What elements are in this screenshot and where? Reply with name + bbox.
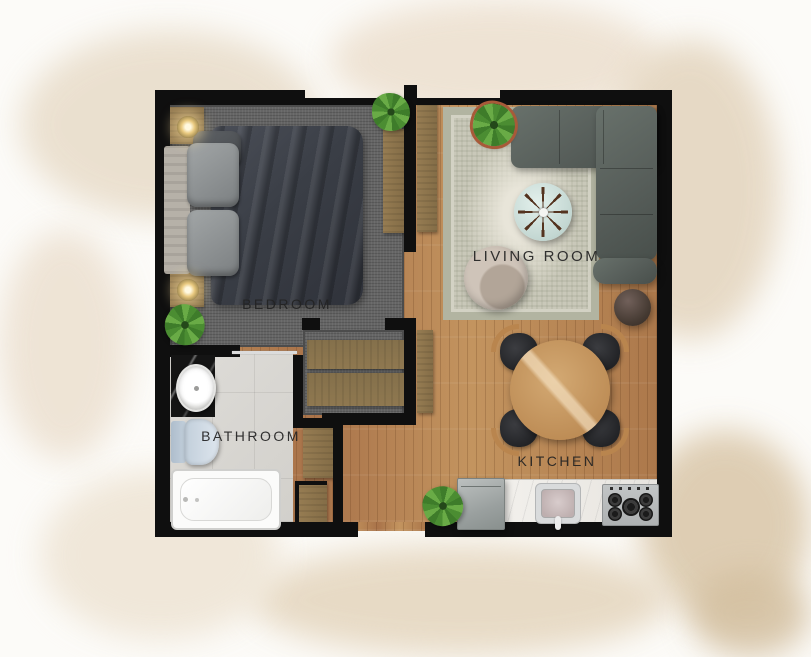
sofa-seam [603, 110, 604, 164]
hall-cabinet [417, 330, 433, 413]
closet-shelf-bottom [307, 373, 404, 406]
burner [622, 498, 640, 516]
living-room-label: LIVING ROOM [449, 248, 624, 265]
wall-top-right [500, 90, 672, 105]
closet-shelf-top [307, 340, 404, 369]
bathtub-tap [183, 497, 188, 502]
kitchen-sink [535, 483, 581, 524]
sink-faucet [555, 516, 561, 530]
dining-table [510, 340, 610, 440]
entry-threshold [358, 522, 425, 531]
wall-top-left [155, 90, 305, 105]
bathtub-tap [195, 498, 199, 502]
wall-entry [333, 425, 343, 535]
bathtub [171, 469, 281, 530]
ottoman [614, 289, 651, 326]
kitchen-label: KITCHEN [482, 453, 632, 469]
refrigerator [457, 478, 505, 530]
burner [639, 493, 653, 507]
bathroom-sink [176, 364, 216, 412]
bathroom-door [232, 351, 297, 354]
sofa-seam [600, 214, 653, 215]
table-lamp-bottom [177, 279, 199, 301]
wall-closet-side [404, 318, 416, 425]
bathroom-label: BATHROOM [176, 428, 326, 444]
bedroom-wardrobe [383, 129, 404, 233]
wall-right [657, 90, 672, 537]
burner [639, 507, 653, 521]
apartment-floor-plan: BEDROOM LIVING ROOM BATHROOM [0, 0, 811, 657]
burner [608, 493, 622, 507]
bedroom-label: BEDROOM [212, 296, 362, 312]
cooktop-knobs [610, 487, 651, 490]
bed-pillow-2 [187, 210, 239, 276]
wall-closet-stub-left [302, 318, 320, 330]
sink-basin [541, 489, 575, 518]
burner [608, 507, 622, 521]
sofa-seam [559, 110, 560, 164]
gas-cooktop [602, 484, 659, 526]
table-lamp-top [177, 116, 199, 138]
sofa-right-section [596, 106, 657, 260]
floor-plan-canvas: BEDROOM LIVING ROOM BATHROOM [0, 0, 811, 657]
plant-bedroom-corner [372, 93, 410, 131]
bed-pillow-1 [187, 143, 239, 207]
coffee-table [514, 183, 572, 241]
sofa-seam [600, 168, 653, 169]
wall-bedroom-living-divider [404, 105, 416, 252]
living-cabinet [417, 100, 437, 232]
